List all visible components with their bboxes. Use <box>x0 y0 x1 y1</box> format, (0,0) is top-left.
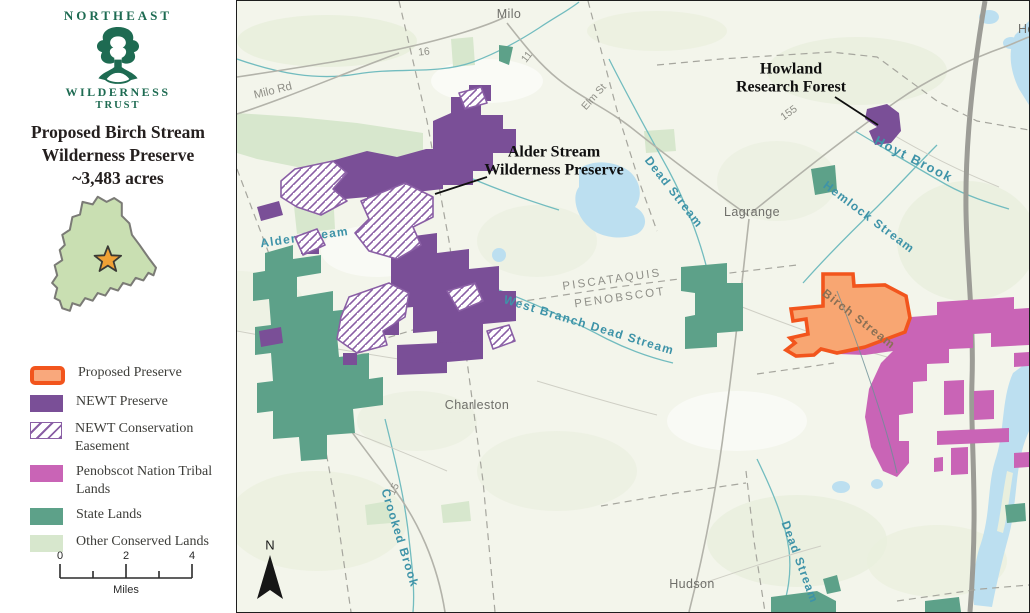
legend-item-penobscot-lands: Penobscot Nation Tribal Lands <box>30 463 226 498</box>
org-logo: NORTHEAST WILDERNESS TRUST <box>0 8 236 111</box>
legend-label: Penobscot Nation Tribal Lands <box>76 463 226 498</box>
newt-preserve-swatch <box>30 395 63 412</box>
legend-item-newt-preserve: NEWT Preserve <box>30 393 226 412</box>
sidebar: NORTHEAST WILDERNESS TRUST Proposed Birc… <box>0 0 236 613</box>
legend: Proposed Preserve NEWT Preserve NEWT Con… <box>30 364 226 552</box>
page-title: Proposed Birch Stream Wilderness Preserv… <box>0 121 236 189</box>
town-label-lagrange: Lagrange <box>724 205 780 219</box>
annotation-line: Wilderness Preserve <box>484 162 623 180</box>
basemap: Alder Stream <box>237 1 1029 612</box>
org-name-bottom: TRUST <box>0 100 236 111</box>
town-label-milo: Milo <box>497 7 522 21</box>
town-label-hudson: Hudson <box>669 577 715 591</box>
town-label-howland: Howland <box>1018 22 1030 36</box>
legend-item-state-lands: State Lands <box>30 506 226 525</box>
state-lands-swatch <box>30 508 63 525</box>
north-arrow-label: N <box>265 538 274 553</box>
town-label-charleston: Charleston <box>445 398 509 412</box>
title-line-3: ~3,483 acres <box>0 167 236 190</box>
annotation-line: Howland <box>736 61 846 79</box>
scale-unit-label: Miles <box>113 584 139 596</box>
route-16-label: 16 <box>418 45 431 58</box>
legend-label: Proposed Preserve <box>78 364 182 382</box>
annotation-line: Alder Stream <box>484 144 623 162</box>
scale-bar: 0 2 4 Miles <box>50 548 210 600</box>
legend-item-proposed-preserve: Proposed Preserve <box>30 364 226 385</box>
newt-easement-swatch <box>30 422 62 439</box>
map-canvas: Alder Stream <box>236 0 1030 613</box>
org-name-top: NORTHEAST <box>0 8 236 24</box>
penobscot-lands-swatch <box>30 465 63 482</box>
scale-tick-0: 0 <box>57 550 63 562</box>
legend-item-newt-easement: NEWT Conservation Easement <box>30 420 226 455</box>
annotation-howland-research-forest: Howland Research Forest <box>736 61 846 98</box>
scale-tick-4: 4 <box>189 550 195 562</box>
tree-logo-icon <box>90 26 146 84</box>
legend-label: State Lands <box>76 506 142 524</box>
maine-locator-map <box>0 193 236 350</box>
scale-tick-2: 2 <box>123 550 129 562</box>
org-name-mid: WILDERNESS <box>0 85 236 100</box>
proposed-preserve-swatch <box>30 366 65 385</box>
legend-label: NEWT Conservation Easement <box>75 420 226 455</box>
annotation-line: Research Forest <box>736 79 846 97</box>
map-figure: NORTHEAST WILDERNESS TRUST Proposed Birc… <box>0 0 1030 613</box>
title-line-1: Proposed Birch Stream <box>0 121 236 144</box>
annotation-alder-stream-preserve: Alder Stream Wilderness Preserve <box>484 144 623 181</box>
legend-label: NEWT Preserve <box>76 393 168 411</box>
title-line-2: Wilderness Preserve <box>0 144 236 167</box>
